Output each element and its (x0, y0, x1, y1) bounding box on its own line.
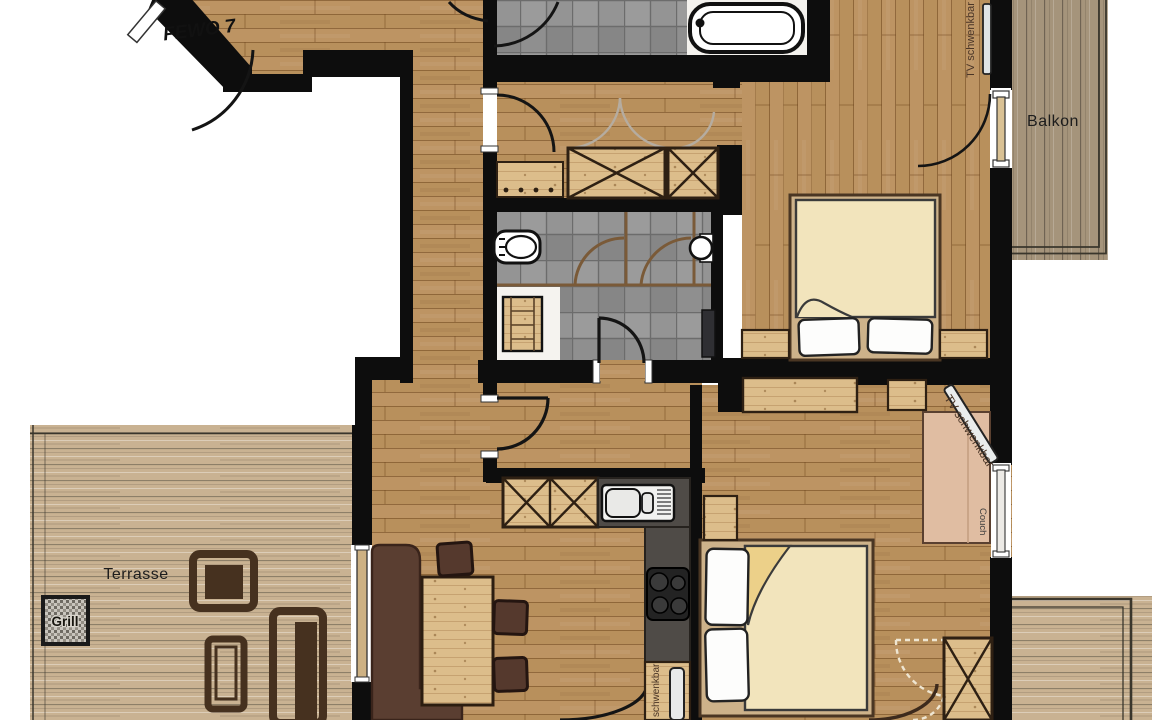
couch-label: Couch (977, 508, 988, 535)
wardrobe-bottom (944, 638, 992, 720)
wall (483, 198, 723, 212)
toilet (494, 231, 540, 263)
sideboard (743, 378, 857, 412)
bed-top (790, 195, 940, 360)
tv-label-bedroom-bottom: schwenkbar (651, 663, 662, 717)
kitchen-hob (647, 568, 689, 620)
wall (355, 357, 372, 425)
tv-label-bedroom-top: TV schwenkbar (965, 2, 977, 78)
wall (807, 0, 830, 57)
wall (651, 360, 718, 383)
wall (990, 0, 1012, 90)
floorplan-drawing: FEWO 7 Balkon Terrasse Grill Couch TV sc… (0, 0, 1152, 720)
bathroom-heater (702, 310, 715, 357)
terrace-door (351, 545, 372, 682)
wall (478, 360, 595, 383)
shoe-bench (497, 162, 563, 197)
floorplan-canvas: FEWO 7 Balkon Terrasse Grill Couch TV sc… (0, 0, 1152, 720)
nightstand (704, 496, 737, 540)
bed-bottom (700, 540, 873, 716)
tv-bedroom-top (983, 4, 991, 74)
wall (352, 425, 372, 545)
sideboard-small (888, 380, 926, 410)
balcony-door (991, 88, 1011, 168)
window (991, 463, 1011, 558)
kitchen-sink (602, 485, 674, 521)
kitchen-closet (503, 478, 598, 527)
grill-label: Grill (51, 614, 78, 629)
hallway-closet (568, 148, 718, 198)
wall (303, 50, 413, 77)
floor-bathroom-top (483, 0, 690, 60)
dining-table (422, 577, 493, 705)
wall (400, 52, 413, 383)
bathtub (690, 4, 803, 52)
wall (713, 76, 740, 88)
wall (352, 682, 372, 720)
nightstand (940, 330, 987, 358)
deck-balcony (1012, 0, 1108, 260)
wall (483, 55, 830, 82)
sauna-bench (503, 297, 542, 351)
balcony-label: Balkon (1027, 113, 1079, 130)
wall (990, 168, 1012, 465)
terrace-label: Terrasse (103, 566, 168, 583)
floor-corridor (413, 52, 483, 385)
wall (483, 150, 497, 397)
wall (718, 385, 743, 412)
wall (223, 74, 312, 92)
nightstand (742, 330, 789, 358)
